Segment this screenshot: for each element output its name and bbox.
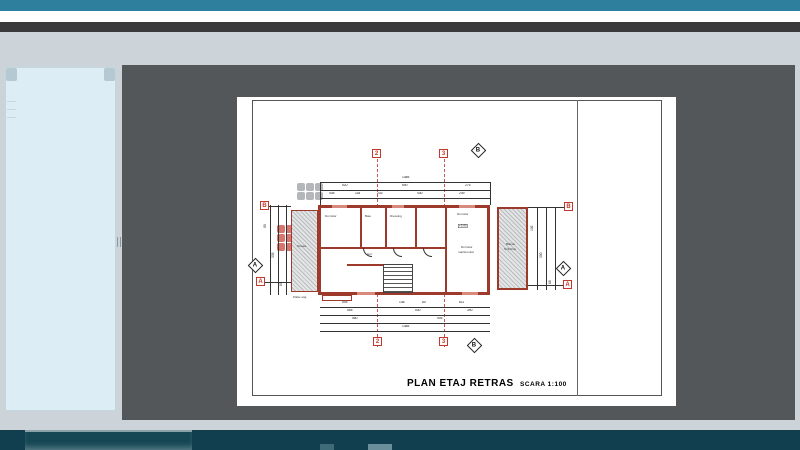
dimension-label: 540: [415, 309, 421, 312]
dimension-label: 233: [377, 192, 383, 195]
window-opening: [332, 205, 347, 208]
window-opening: [459, 205, 475, 208]
dimension-label: 80: [422, 301, 426, 304]
dimension-label: 611: [459, 301, 464, 304]
window-opening: [357, 292, 375, 295]
drawing-scale-label: SCARA 1:100: [520, 381, 567, 388]
titlebar-white-stripe: [0, 11, 800, 22]
dimension-label: 249: [459, 192, 465, 195]
dimension-line: [546, 207, 547, 290]
room-label: Palier etaj: [293, 296, 306, 299]
leader-line: [266, 206, 291, 207]
dimension-line: [320, 331, 490, 332]
leader-line: [528, 285, 563, 286]
dimension-label: 520: [342, 184, 348, 187]
room-label: Dormitor: [461, 246, 473, 249]
leader-line: [262, 282, 291, 283]
partition-wall: [415, 205, 417, 247]
drawing-title: PLAN ETAJ RETRAS: [407, 378, 514, 389]
dimension-line: [537, 207, 538, 290]
grid-marker-3: 3: [439, 337, 448, 346]
dimension-label: 390: [467, 309, 473, 312]
room-label: Balcon: [506, 243, 515, 246]
extension-line: [490, 182, 491, 205]
dimension-label: 118: [355, 192, 360, 195]
dimension-line: [320, 315, 490, 316]
dimension-line: [320, 307, 490, 308]
drawing-sheet: Commerciale: [237, 97, 676, 406]
partition-wall: [385, 205, 387, 247]
viewer-canvas[interactable]: Commerciale: [122, 65, 795, 420]
dimension-label: 102: [531, 225, 534, 231]
dimension-label: 1485: [402, 176, 409, 179]
sidebar-panel[interactable]: [5, 67, 116, 411]
dimension-label: 148: [399, 301, 405, 304]
dimension-label: 80: [280, 282, 283, 286]
window-opening: [462, 292, 478, 295]
partition-wall: [347, 264, 383, 266]
sidebar-divider-line: [7, 109, 16, 110]
dimension-label: 95: [264, 224, 267, 228]
menubar-stripe: [0, 22, 800, 32]
grid-marker-2: 2: [372, 149, 381, 158]
dimension-label: 690: [402, 184, 408, 187]
sidebar-corner-mark-right: [104, 68, 115, 81]
dimension-label: 440: [417, 192, 423, 195]
sidebar-divider-line: [7, 117, 16, 118]
dimension-line: [555, 207, 556, 290]
room-label: Terasa: [297, 245, 306, 248]
dimension-line: [320, 198, 490, 199]
grid-marker-3: 3: [439, 149, 448, 158]
dimension-line: [320, 323, 490, 324]
taskbar: [0, 430, 800, 450]
grid-marker-2: 2: [373, 337, 382, 346]
grid-marker-B: B: [260, 201, 269, 210]
dimension-label: 555: [347, 309, 353, 312]
partition-wall: [360, 205, 362, 247]
dimension-label: 275: [465, 184, 471, 187]
dimension-label: 1485: [402, 325, 409, 328]
dimension-line: [320, 190, 490, 191]
dimension-line: [320, 182, 490, 183]
titlebar-accent-stripe: [0, 0, 800, 11]
leader-line: [528, 207, 564, 208]
dimension-label: 300: [540, 252, 543, 258]
dimension-label: 905: [437, 317, 443, 320]
sidebar-splitter-grip[interactable]: [117, 237, 121, 247]
sidebar-divider-line: [7, 101, 16, 102]
dimension-label: 88: [549, 280, 552, 284]
application-window: Commerciale: [0, 0, 800, 450]
window-opening: [392, 205, 404, 208]
room-label: Dressing: [390, 215, 402, 218]
sidebar-corner-mark-left: [6, 68, 17, 81]
terrace-hatched-left: [291, 210, 318, 292]
extension-line: [320, 182, 321, 205]
room-label: +5.80: [458, 224, 468, 228]
room-label: S=9.0mp: [504, 248, 516, 251]
grid-marker-A: A: [563, 280, 572, 289]
room-label: Baie: [365, 215, 371, 218]
dimension-label: 505: [342, 301, 348, 304]
grid-marker-B: B: [564, 202, 573, 211]
staircase: [383, 264, 413, 293]
taskbar-window-button[interactable]: [25, 430, 192, 450]
sheet-column-divider: [577, 100, 578, 396]
partition-wall: [445, 205, 447, 295]
room-label: Hol: [367, 253, 372, 256]
room-label: Dormitor: [325, 215, 337, 218]
room-label: matrimonial: [458, 251, 474, 254]
taskbar-tray-icon[interactable]: [368, 444, 392, 450]
room-label: Dormitor: [457, 213, 469, 216]
dimension-label: 580: [352, 317, 358, 320]
dimension-label: 335: [272, 252, 275, 258]
dimension-label: 445: [329, 192, 335, 195]
taskbar-tray-icon[interactable]: [320, 444, 334, 450]
grid-marker-A: A: [256, 277, 265, 286]
